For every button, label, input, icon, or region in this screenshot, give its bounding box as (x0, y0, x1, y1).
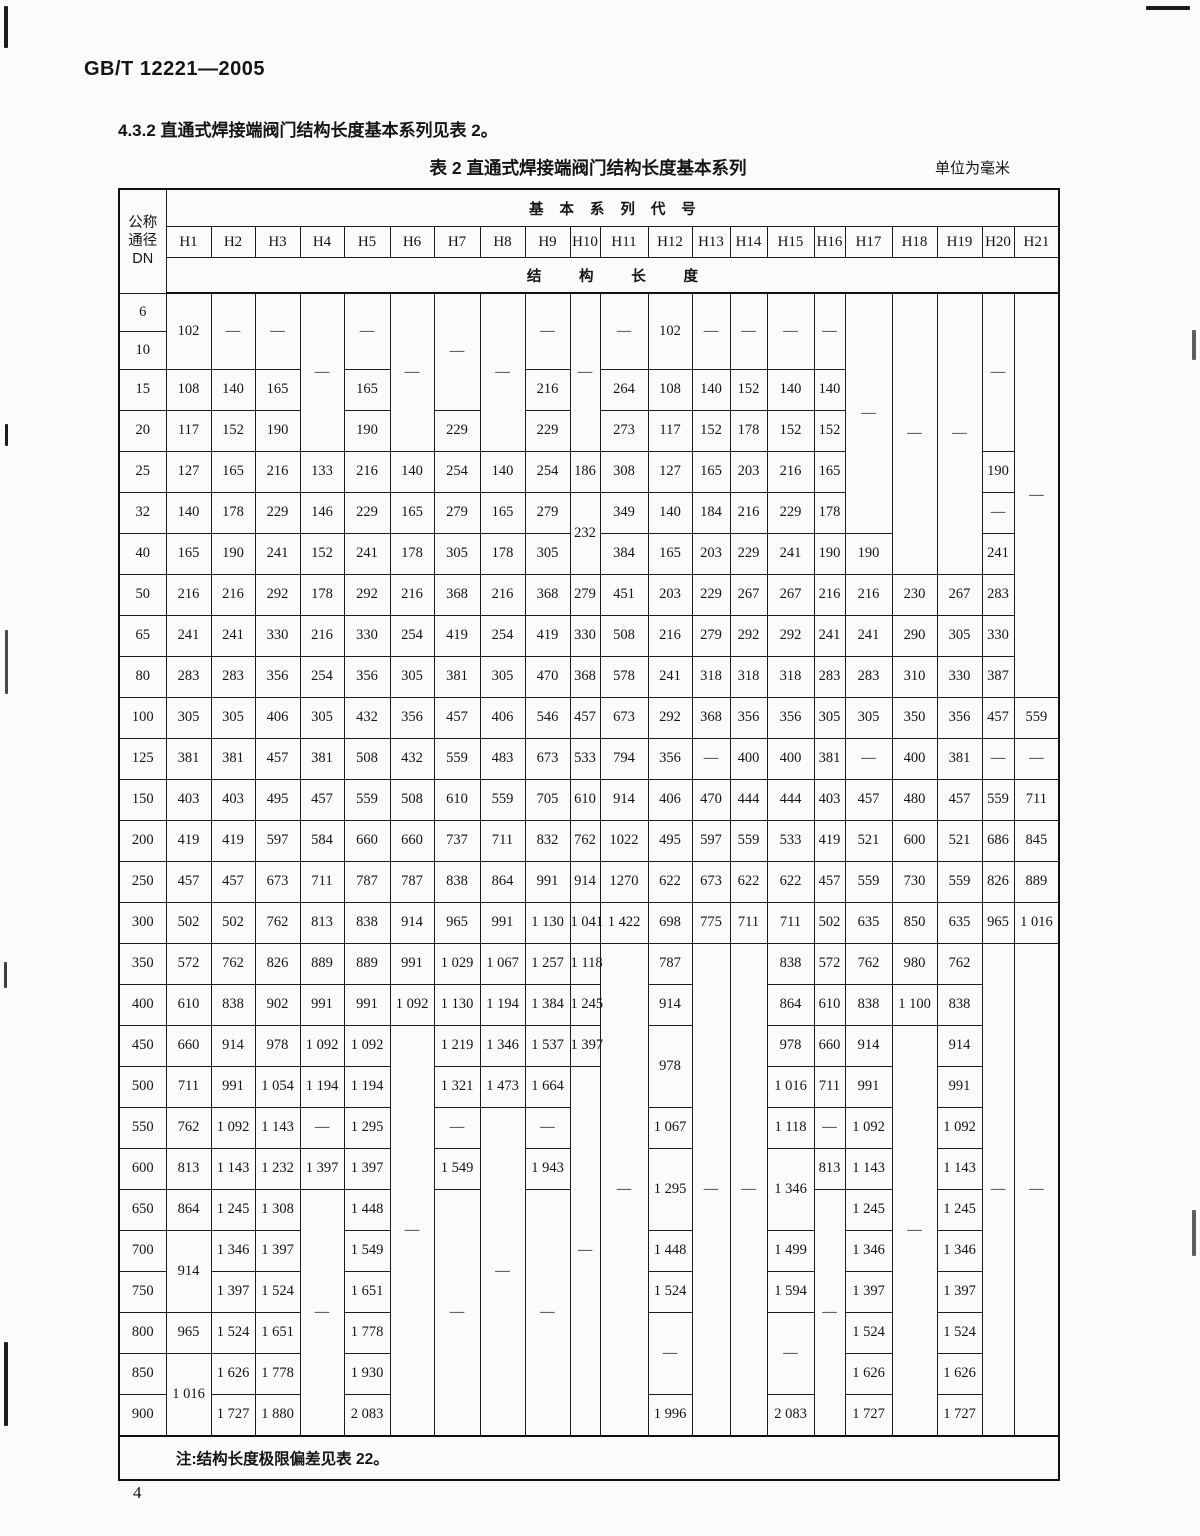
table-cell: 381 (166, 738, 211, 779)
table-cell: 889 (1014, 861, 1059, 902)
table-row-dn-50: 5021621629217829221636821636827945120322… (119, 574, 1059, 615)
table-note-row: 注:结构长度极限偏差见表 22。 (119, 1436, 1059, 1480)
table-cell: 711 (767, 902, 814, 943)
table-cell: 495 (255, 779, 300, 820)
table-cell: 241 (982, 533, 1014, 574)
table-cell: 254 (434, 451, 480, 492)
dn-cell: 6 (119, 293, 166, 331)
table-row-dn-450: 4506609149781 0921 092—1 2191 3461 5371 … (119, 1025, 1059, 1066)
table-cell: 1 524 (648, 1271, 692, 1312)
dn-cell: 65 (119, 615, 166, 656)
table-cell: — (390, 1025, 434, 1436)
table-cell: 572 (814, 943, 845, 984)
table-cell: 330 (982, 615, 1014, 656)
group-header: 基本系列代号 (166, 189, 1059, 227)
table-cell: 508 (390, 779, 434, 820)
table-cell: 832 (525, 820, 570, 861)
series-code-H8: H8 (480, 227, 525, 258)
table-cell: 1 308 (255, 1189, 300, 1230)
table-cell: 267 (730, 574, 767, 615)
table-cell: 660 (390, 820, 434, 861)
table-cell: 184 (692, 492, 730, 533)
table-cell: 1 245 (937, 1189, 982, 1230)
table-cell: — (767, 293, 814, 369)
table-cell: 140 (390, 451, 434, 492)
table-cell: 546 (525, 697, 570, 738)
table-cell: 914 (845, 1025, 892, 1066)
table-cell: 232 (570, 492, 600, 574)
table-cell: 1 067 (648, 1107, 692, 1148)
table-cell: 203 (648, 574, 692, 615)
series-code-H7: H7 (434, 227, 480, 258)
table-cell: 597 (255, 820, 300, 861)
table-cell: 991 (525, 861, 570, 902)
table-title: 表 2 直通式焊接端阀门结构长度基本系列 (430, 155, 747, 180)
table-cell: 152 (767, 410, 814, 451)
corner-line-3: DN (120, 250, 166, 268)
table-cell: — (937, 293, 982, 574)
table-cell: 1 930 (344, 1353, 390, 1394)
table-cell: 559 (982, 779, 1014, 820)
table-cell: 368 (525, 574, 570, 615)
table-cell: 1 118 (570, 943, 600, 984)
table-cell: 264 (600, 369, 648, 410)
table-cell: 178 (480, 533, 525, 574)
table-cell: 140 (648, 492, 692, 533)
table-cell: 165 (692, 451, 730, 492)
table-cell: 165 (255, 369, 300, 410)
table-cell: 381 (434, 656, 480, 697)
table-cell: 864 (480, 861, 525, 902)
table-cell: 711 (480, 820, 525, 861)
table-cell: 1 054 (255, 1066, 300, 1107)
table-cell: — (1014, 293, 1059, 697)
table-cell: 165 (166, 533, 211, 574)
table-cell: 152 (730, 369, 767, 410)
table-cell: — (390, 293, 434, 451)
table-cell: 229 (434, 410, 480, 451)
series-code-H14: H14 (730, 227, 767, 258)
series-code-H6: H6 (390, 227, 434, 258)
table-cell: 279 (570, 574, 600, 615)
table-cell: 330 (344, 615, 390, 656)
table-cell: 127 (648, 451, 692, 492)
scan-artifact (1192, 1210, 1196, 1256)
table-cell: 838 (767, 943, 814, 984)
series-code-H9: H9 (525, 227, 570, 258)
table-cell: 559 (344, 779, 390, 820)
table-row-dn-300: 3005025027628138389149659911 1301 0411 4… (119, 902, 1059, 943)
dn-cell: 750 (119, 1271, 166, 1312)
table-cell: — (344, 293, 390, 369)
dn-cell: 450 (119, 1025, 166, 1066)
table-cell: 521 (937, 820, 982, 861)
table-cell: 350 (892, 697, 937, 738)
table-cell: — (255, 293, 300, 369)
table-cell: 267 (937, 574, 982, 615)
table-cell: — (730, 943, 767, 1436)
table-cell: 559 (730, 820, 767, 861)
table-cell: 444 (730, 779, 767, 820)
dn-cell: 800 (119, 1312, 166, 1353)
table-cell: 419 (434, 615, 480, 656)
table-cell: 610 (814, 984, 845, 1025)
table-cell: 845 (1014, 820, 1059, 861)
table-cell: 1 524 (845, 1312, 892, 1353)
table-cell: 400 (730, 738, 767, 779)
table-cell: 457 (300, 779, 344, 820)
table-cell: 600 (892, 820, 937, 861)
table-cell: 444 (767, 779, 814, 820)
scan-artifact (4, 6, 8, 48)
table-cell: 108 (648, 369, 692, 410)
table-cell: 1 880 (255, 1394, 300, 1436)
table-cell: 1 194 (300, 1066, 344, 1107)
table-cell: 965 (434, 902, 480, 943)
table-cell: 991 (937, 1066, 982, 1107)
table-cell: 1 130 (525, 902, 570, 943)
table-cell: 292 (648, 697, 692, 738)
table-cell: 308 (600, 451, 648, 492)
table-cell: 1 397 (845, 1271, 892, 1312)
table-cell: 1 067 (480, 943, 525, 984)
series-code-H2: H2 (211, 227, 255, 258)
table-cell: 483 (480, 738, 525, 779)
table-cell: 292 (767, 615, 814, 656)
table-cell: 762 (166, 1107, 211, 1148)
table-cell: 1 016 (767, 1066, 814, 1107)
table-cell: 775 (692, 902, 730, 943)
table-cell: 368 (692, 697, 730, 738)
dn-cell: 50 (119, 574, 166, 615)
table-cell: — (434, 293, 480, 410)
dn-cell: 80 (119, 656, 166, 697)
series-code-H3: H3 (255, 227, 300, 258)
table-cell: 914 (648, 984, 692, 1025)
table-cell: 1 245 (570, 984, 600, 1025)
dn-cell: 350 (119, 943, 166, 984)
table-cell: 406 (648, 779, 692, 820)
table-cell: 813 (166, 1148, 211, 1189)
table-cell: 1 321 (434, 1066, 480, 1107)
table-cell: — (570, 1066, 600, 1436)
table-cell: 419 (814, 820, 845, 861)
table-cell: 838 (434, 861, 480, 902)
table-cell: 283 (982, 574, 1014, 615)
table-cell: 978 (648, 1025, 692, 1107)
scan-artifact (5, 630, 8, 694)
table-cell: 152 (300, 533, 344, 574)
table-cell: 1 524 (937, 1312, 982, 1353)
table-cell: 400 (767, 738, 814, 779)
table-cell: 838 (211, 984, 255, 1025)
table-cell: 216 (166, 574, 211, 615)
table-cell: 292 (344, 574, 390, 615)
table-cell: 279 (434, 492, 480, 533)
table-cell: 241 (255, 533, 300, 574)
table-cell: 241 (648, 656, 692, 697)
table-cell: 2 083 (344, 1394, 390, 1436)
page-number: 4 (133, 1483, 142, 1503)
table-cell: 140 (692, 369, 730, 410)
table-cell: 216 (525, 369, 570, 410)
table-cell: 508 (344, 738, 390, 779)
table-cell: 2 083 (767, 1394, 814, 1436)
table-cell: 838 (845, 984, 892, 1025)
table-cell: 1 346 (211, 1230, 255, 1271)
table-cell: 1 118 (767, 1107, 814, 1148)
dn-cell: 125 (119, 738, 166, 779)
table-cell: 457 (166, 861, 211, 902)
table-cell: 216 (814, 574, 845, 615)
table-cell: 457 (434, 697, 480, 738)
table-row-dn-100: 1003053054063054323564574065464576732923… (119, 697, 1059, 738)
table-cell: 381 (814, 738, 845, 779)
table-cell: 1 549 (344, 1230, 390, 1271)
length-header: 结构长度 (166, 258, 1059, 294)
table-cell: 356 (648, 738, 692, 779)
table-cell: 794 (600, 738, 648, 779)
table-cell: 178 (211, 492, 255, 533)
table-cell: 864 (166, 1189, 211, 1230)
table-cell: 127 (166, 451, 211, 492)
table-cell: — (692, 293, 730, 369)
table-cell: 889 (300, 943, 344, 984)
table-cell: 457 (845, 779, 892, 820)
table-cell: 965 (982, 902, 1014, 943)
series-code-H11: H11 (600, 227, 648, 258)
dn-cell: 850 (119, 1353, 166, 1394)
table-cell: 991 (480, 902, 525, 943)
table-cell: 254 (390, 615, 434, 656)
table-cell: 502 (211, 902, 255, 943)
table-cell: 1 524 (255, 1271, 300, 1312)
table-cell: 165 (344, 369, 390, 410)
table-cell: 146 (300, 492, 344, 533)
table-cell: — (892, 293, 937, 574)
table-caption-row: 表 2 直通式焊接端阀门结构长度基本系列 单位为毫米 (118, 155, 1058, 180)
scan-artifact (4, 1342, 8, 1426)
table-cell: 572 (166, 943, 211, 984)
table-cell: 1 346 (767, 1148, 814, 1230)
table-cell: 826 (982, 861, 1014, 902)
table-cell: 711 (166, 1066, 211, 1107)
table-cell: 356 (344, 656, 390, 697)
table-cell: 406 (480, 697, 525, 738)
series-code-H20: H20 (982, 227, 1014, 258)
series-code-H1: H1 (166, 227, 211, 258)
table-cell: 1 626 (937, 1353, 982, 1394)
table-cell: 387 (982, 656, 1014, 697)
table-cell: 400 (892, 738, 937, 779)
table-cell: 622 (767, 861, 814, 902)
table-cell: 283 (166, 656, 211, 697)
table-cell: — (814, 1189, 845, 1436)
table-cell: 229 (255, 492, 300, 533)
scan-artifact (1146, 6, 1190, 10)
table-cell: 1 143 (255, 1107, 300, 1148)
scan-artifact (1192, 330, 1196, 360)
table-cell: 1 626 (211, 1353, 255, 1394)
table-cell: 914 (600, 779, 648, 820)
table-cell: 1 245 (845, 1189, 892, 1230)
table-cell: — (730, 293, 767, 369)
table-cell: — (300, 293, 344, 451)
table-cell: 330 (255, 615, 300, 656)
table-row-dn-350: 3505727628268898899911 0291 0671 2571 11… (119, 943, 1059, 984)
table-cell: 965 (166, 1312, 211, 1353)
table-cell: — (814, 1107, 845, 1148)
table-cell: 356 (390, 697, 434, 738)
table-cell: 1 346 (480, 1025, 525, 1066)
table-cell: 419 (525, 615, 570, 656)
table-cell: 254 (300, 656, 344, 697)
table-cell: 356 (730, 697, 767, 738)
table-cell: 178 (300, 574, 344, 615)
series-code-H15: H15 (767, 227, 814, 258)
table-cell: 1 778 (255, 1353, 300, 1394)
table-cell: 597 (692, 820, 730, 861)
series-code-H10: H10 (570, 227, 600, 258)
table-cell: 279 (525, 492, 570, 533)
table-cell: 1 092 (937, 1107, 982, 1148)
table-cell: — (525, 293, 570, 369)
table-cell: 1 194 (480, 984, 525, 1025)
table-body: 公称 通径 DN 基本系列代号 H1H2H3H4H5H6H7H8H9H10H11… (119, 189, 1059, 1480)
table-cell: 1270 (600, 861, 648, 902)
table-cell: 978 (255, 1025, 300, 1066)
table-cell: 216 (211, 574, 255, 615)
series-code-H4: H4 (300, 227, 344, 258)
corner-line-1: 公称 (120, 214, 166, 232)
table-cell: 673 (255, 861, 300, 902)
table-cell: 283 (845, 656, 892, 697)
table-cell: 559 (1014, 697, 1059, 738)
dn-cell: 300 (119, 902, 166, 943)
table-cell: 419 (211, 820, 255, 861)
table-cell: 305 (434, 533, 480, 574)
table-cell: 368 (434, 574, 480, 615)
table-cell: — (845, 738, 892, 779)
table-cell: 254 (480, 615, 525, 656)
table-cell: 178 (390, 533, 434, 574)
table-cell: 980 (892, 943, 937, 984)
table-cell: 991 (344, 984, 390, 1025)
table-cell: — (814, 293, 845, 369)
table-cell: 305 (211, 697, 255, 738)
dn-cell: 100 (119, 697, 166, 738)
table-cell: 241 (845, 615, 892, 656)
table-cell: 457 (937, 779, 982, 820)
dn-cell: 900 (119, 1394, 166, 1436)
table-cell: 1 016 (1014, 902, 1059, 943)
table-cell: 356 (255, 656, 300, 697)
table-cell: 1 626 (845, 1353, 892, 1394)
table-cell: 711 (730, 902, 767, 943)
table-row-dn-6: 6102——————————102————————— (119, 293, 1059, 331)
table-cell: 254 (525, 451, 570, 492)
table-cell: 914 (937, 1025, 982, 1066)
table-cell: — (648, 1312, 692, 1394)
table-cell: 559 (434, 738, 480, 779)
table-cell: 914 (390, 902, 434, 943)
table-cell: 1 473 (480, 1066, 525, 1107)
dn-cell: 40 (119, 533, 166, 574)
table-cell: 190 (814, 533, 845, 574)
table-cell: 216 (845, 574, 892, 615)
table-cell: 1022 (600, 820, 648, 861)
table-cell: 730 (892, 861, 937, 902)
table-cell: 762 (937, 943, 982, 984)
table-cell: 330 (937, 656, 982, 697)
table-cell: 318 (767, 656, 814, 697)
table-cell: 533 (570, 738, 600, 779)
table-cell: 1 448 (648, 1230, 692, 1271)
table-cell: 241 (344, 533, 390, 574)
table-cell: 1 092 (344, 1025, 390, 1066)
table-cell: — (982, 738, 1014, 779)
table-cell: 241 (211, 615, 255, 656)
dn-cell: 650 (119, 1189, 166, 1230)
table-cell: 559 (480, 779, 525, 820)
table-cell: 356 (937, 697, 982, 738)
table-cell: 419 (166, 820, 211, 861)
table-cell: — (300, 1107, 344, 1148)
table-cell: 305 (166, 697, 211, 738)
table-cell: 457 (814, 861, 845, 902)
table-cell: 229 (344, 492, 390, 533)
table-cell: 229 (767, 492, 814, 533)
table-cell: 203 (692, 533, 730, 574)
table-cell: 991 (300, 984, 344, 1025)
table-cell: 1 384 (525, 984, 570, 1025)
table-cell: 1 422 (600, 902, 648, 943)
dn-cell: 150 (119, 779, 166, 820)
table-cell: 1 397 (937, 1271, 982, 1312)
table-cell: 403 (166, 779, 211, 820)
table-cell: 914 (211, 1025, 255, 1066)
table-cell: 1 245 (211, 1189, 255, 1230)
table-cell: 673 (525, 738, 570, 779)
table-cell: 762 (845, 943, 892, 984)
table-cell: 140 (166, 492, 211, 533)
table-cell: 622 (648, 861, 692, 902)
header-row-group: 公称 通径 DN 基本系列代号 (119, 189, 1059, 227)
table-cell: — (1014, 738, 1059, 779)
table-cell: 190 (255, 410, 300, 451)
table-cell: 229 (730, 533, 767, 574)
series-code-H5: H5 (344, 227, 390, 258)
table-cell: 305 (845, 697, 892, 738)
table-cell: 1 346 (937, 1230, 982, 1271)
table-cell: 190 (344, 410, 390, 451)
table-cell: 1 092 (211, 1107, 255, 1148)
table-cell: 991 (845, 1066, 892, 1107)
table-cell: 502 (166, 902, 211, 943)
dn-cell: 400 (119, 984, 166, 1025)
table-cell: 1 651 (344, 1271, 390, 1312)
table-cell: — (434, 1107, 480, 1148)
table-cell: 140 (767, 369, 814, 410)
table-cell: 1 194 (344, 1066, 390, 1107)
table-cell: 1 041 (570, 902, 600, 943)
dn-cell: 10 (119, 331, 166, 369)
table-cell: 1 778 (344, 1312, 390, 1353)
table-cell: 152 (211, 410, 255, 451)
table-cell: — (692, 738, 730, 779)
dn-cell: 200 (119, 820, 166, 861)
table-cell: 502 (814, 902, 845, 943)
